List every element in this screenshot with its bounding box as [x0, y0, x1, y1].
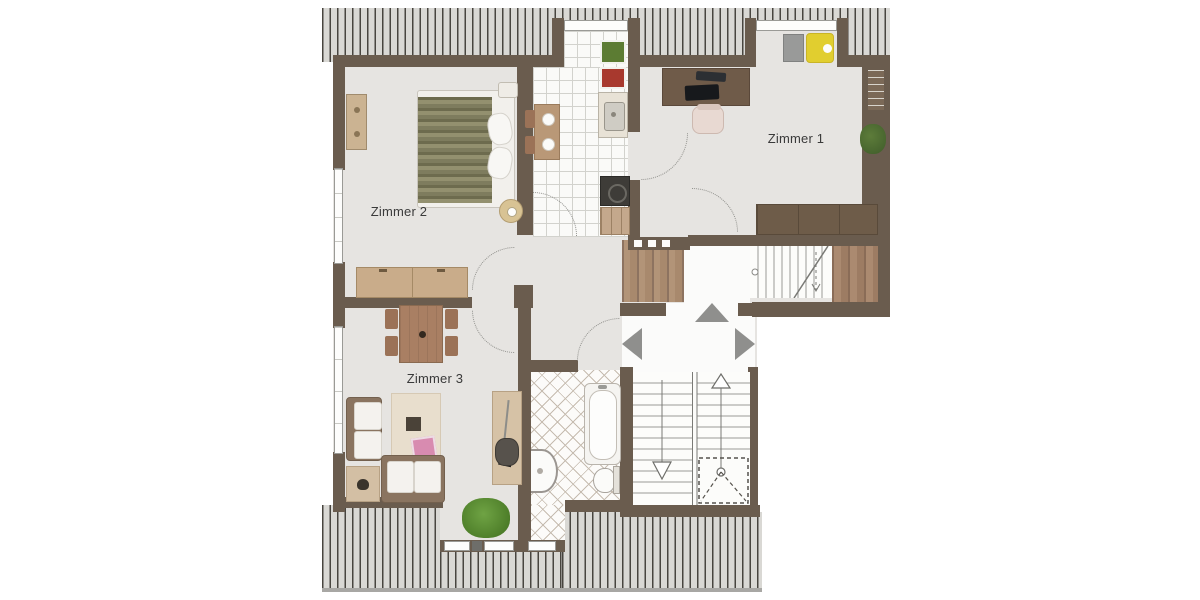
door-arc-kitchen: [533, 192, 577, 236]
yellow-armchair: [806, 33, 834, 63]
drain-icon: [537, 468, 543, 474]
stair-hall-white: [684, 240, 750, 304]
desk-accessories: [696, 71, 727, 82]
wall-bath-bottom-right: [565, 500, 620, 512]
room-label-zimmer-3: Zimmer 3: [392, 371, 478, 387]
kitchen-table: [534, 104, 560, 160]
book-shelf: [868, 70, 884, 110]
bathtub-inner: [589, 390, 617, 460]
laptop-icon: [685, 84, 720, 101]
table-center-dot: [419, 331, 426, 338]
wall-landing-bottom: [752, 302, 890, 317]
wall-bath-top: [518, 360, 578, 372]
wardrobe-handle: [354, 107, 360, 113]
door-arc-zimmer1: [641, 133, 688, 180]
stove-ring-icon: [608, 184, 627, 203]
wardrobe-handle: [354, 131, 360, 137]
bathroom-floor-annex: [531, 505, 565, 545]
armchair-cushion: [354, 431, 382, 459]
chair-back: [697, 104, 721, 110]
entry-arrow-up-icon: [695, 303, 729, 322]
dining-chair: [385, 336, 398, 356]
ottoman: [783, 34, 804, 62]
lamp-icon: [507, 207, 517, 217]
office-chair-zimmer1: [692, 106, 724, 134]
wall-glass-inset-1: [634, 240, 642, 247]
sofa-cushion: [414, 461, 441, 493]
office-chair-zimmer3: [495, 438, 519, 466]
stairs-upper: [750, 246, 832, 298]
toilet-tank: [613, 466, 620, 494]
wall-stairs-bottom: [620, 505, 760, 517]
bed: [417, 90, 515, 208]
wall-landing-right: [878, 207, 890, 317]
wall-kitchen-zimmer1-upper: [628, 67, 640, 132]
kitchen-chair: [525, 136, 535, 154]
window-post: [472, 541, 482, 551]
plate: [542, 113, 555, 126]
wall-left-2: [333, 262, 345, 328]
entry-arrow-left-icon: [622, 328, 642, 360]
stairs-lower: [633, 372, 750, 505]
wall-entry-top-left: [620, 303, 666, 316]
door-arc-zimmer2: [472, 247, 515, 290]
dining-chair: [445, 309, 458, 329]
wall-glass-inset-3: [662, 240, 670, 247]
zimmer1-skylight-window: [756, 20, 837, 31]
roof-hatching-bottom-mid: [440, 552, 562, 592]
bathtub: [584, 383, 621, 465]
wall-zimmer1-bottom: [688, 235, 878, 246]
stove: [600, 176, 630, 206]
kitchen-sink-counter: [598, 92, 628, 138]
room-label-zimmer-2: Zimmer 2: [356, 204, 442, 220]
side-stool-lamp: [499, 199, 523, 223]
entry-arrow-right-icon: [735, 328, 755, 360]
armchair-cushion-icon: [823, 44, 832, 53]
sideboard-zimmer1: [756, 204, 878, 235]
zimmer3-window: [334, 326, 343, 454]
sideboard-handle: [379, 269, 387, 272]
sideboard-divider: [412, 268, 413, 297]
sofa-cushion: [387, 461, 414, 493]
armchair: [346, 397, 382, 461]
roof-hatching-bottom-right: [562, 512, 762, 592]
door-arc-landing: [692, 188, 738, 232]
wall-kitchen-bay-left: [552, 18, 564, 67]
wall-top-mid: [640, 55, 746, 67]
door-arc-zimmer3: [472, 310, 515, 353]
zimmer2-window: [334, 168, 343, 264]
dining-chair: [385, 309, 398, 329]
floor-plan: Zimmer 1 Zimmer 2 Zimmer 3: [0, 0, 1200, 600]
nightstand: [498, 82, 518, 98]
room-label-zimmer-1: Zimmer 1: [753, 131, 839, 147]
wall-alcove-left: [745, 18, 756, 67]
bathroom-window: [528, 541, 556, 551]
door-arc-bathroom: [577, 318, 620, 361]
dining-chair: [445, 336, 458, 356]
faucet-icon: [611, 112, 616, 117]
teapot-icon: [357, 479, 369, 490]
wall-stairs-left: [620, 367, 633, 507]
kitchen-skylight-window: [564, 20, 628, 31]
zimmer3-bottom-window-1: [444, 541, 470, 551]
stove-cabinet: [600, 207, 630, 235]
toilet: [593, 468, 615, 493]
wall-hall-stub: [514, 285, 533, 308]
plate: [542, 138, 555, 151]
armchair-cushion: [354, 402, 382, 430]
wall-left-1: [333, 55, 345, 170]
desk-zimmer1: [662, 68, 750, 106]
wall-kitchen-bay-right: [628, 18, 640, 67]
kitchen-shelf-goods: [600, 67, 626, 89]
plant-icon: [860, 124, 886, 154]
sofa: [381, 455, 445, 503]
bed-blanket: [418, 97, 492, 203]
landing-wood-floor: [832, 246, 878, 302]
toy-box-icon: [406, 417, 421, 431]
kitchen-shelf-greens: [600, 40, 626, 64]
large-plant-icon: [462, 498, 510, 538]
sideboard-handle: [437, 269, 445, 272]
wall-glass-inset-2: [648, 240, 656, 247]
sideboard-zimmer2: [356, 267, 468, 298]
zimmer3-bottom-window-2: [484, 541, 514, 551]
kitchen-chair: [525, 110, 535, 128]
faucet-icon: [598, 385, 607, 389]
wall-entry-top-right: [738, 303, 752, 316]
dining-table: [399, 305, 443, 363]
side-table: [346, 466, 380, 502]
roof-hatching-bottom-left: [322, 505, 440, 592]
wardrobe: [346, 94, 367, 150]
